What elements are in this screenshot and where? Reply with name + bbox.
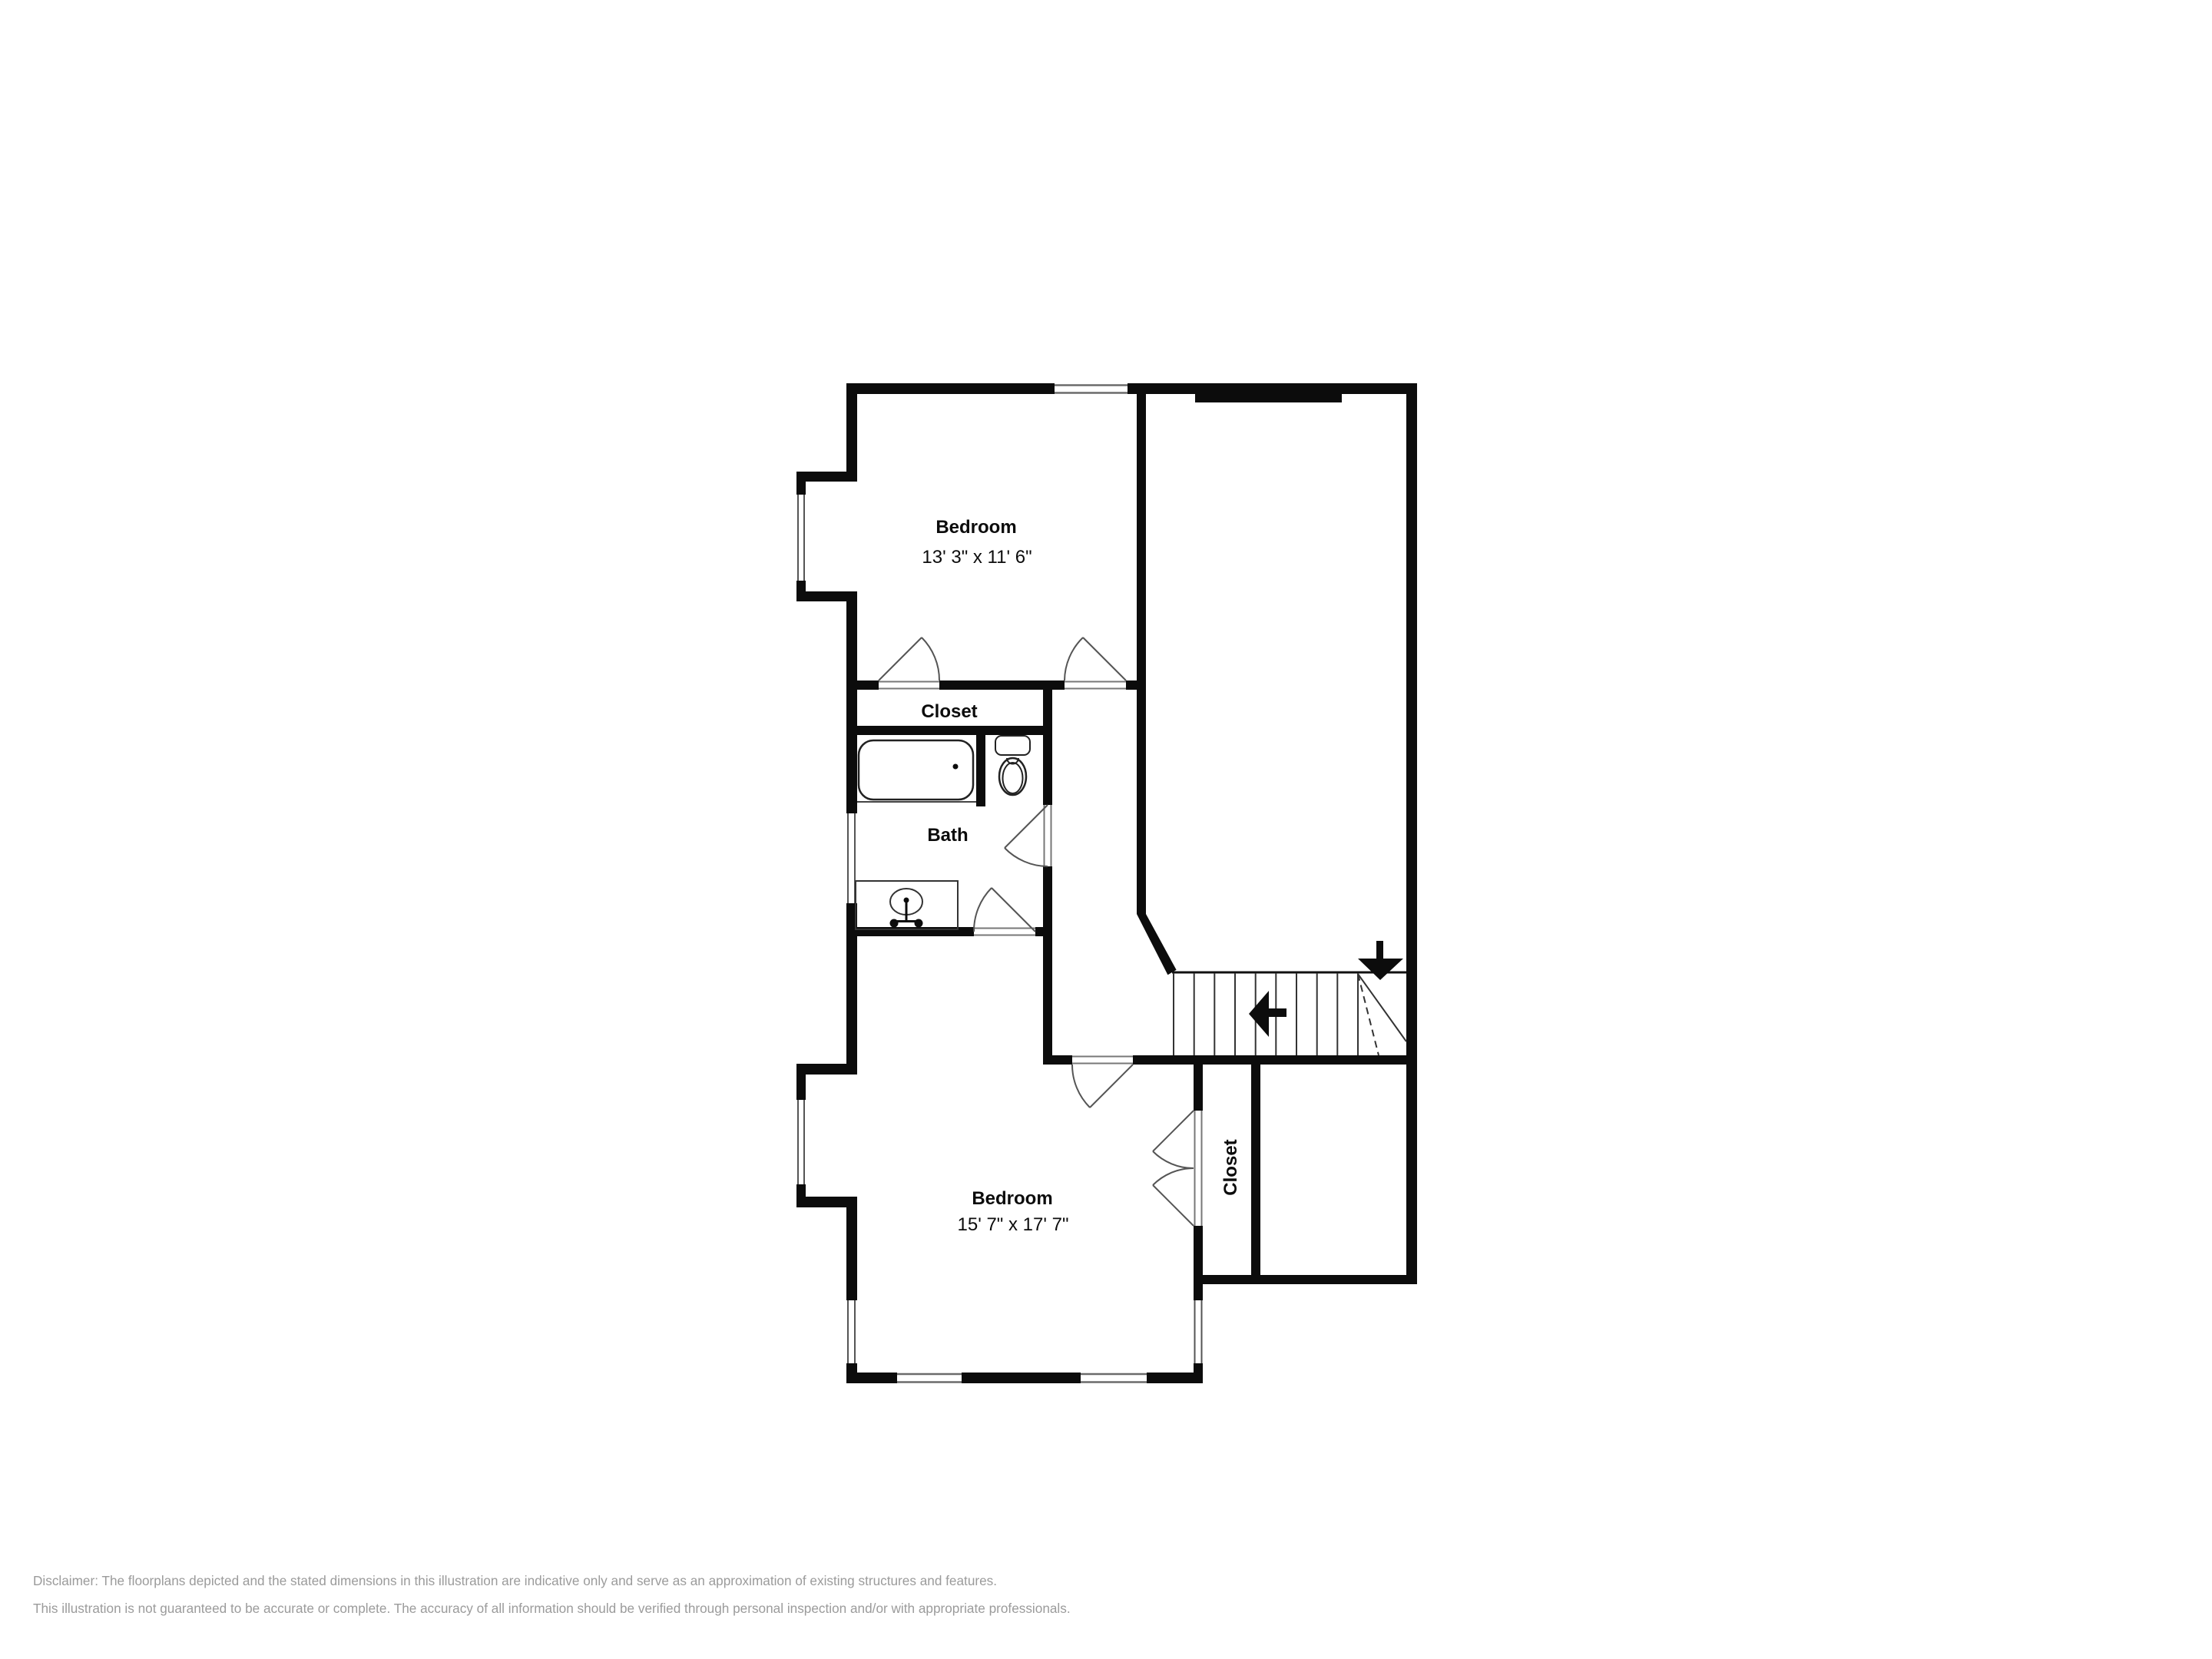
svg-text:Closet: Closet xyxy=(1220,1139,1241,1195)
svg-text:Closet: Closet xyxy=(921,701,977,722)
svg-text:Bedroom: Bedroom xyxy=(972,1188,1052,1209)
svg-text:Disclaimer: The floorplans dep: Disclaimer: The floorplans depicted and … xyxy=(33,1573,997,1588)
svg-text:15' 7" x 17' 7": 15' 7" x 17' 7" xyxy=(958,1214,1069,1235)
svg-text:Bath: Bath xyxy=(927,825,968,846)
svg-text:13' 3" x 11' 6": 13' 3" x 11' 6" xyxy=(922,547,1031,568)
svg-text:Bedroom: Bedroom xyxy=(935,517,1016,538)
svg-text:This illustration is not guara: This illustration is not guaranteed to b… xyxy=(33,1601,1071,1616)
